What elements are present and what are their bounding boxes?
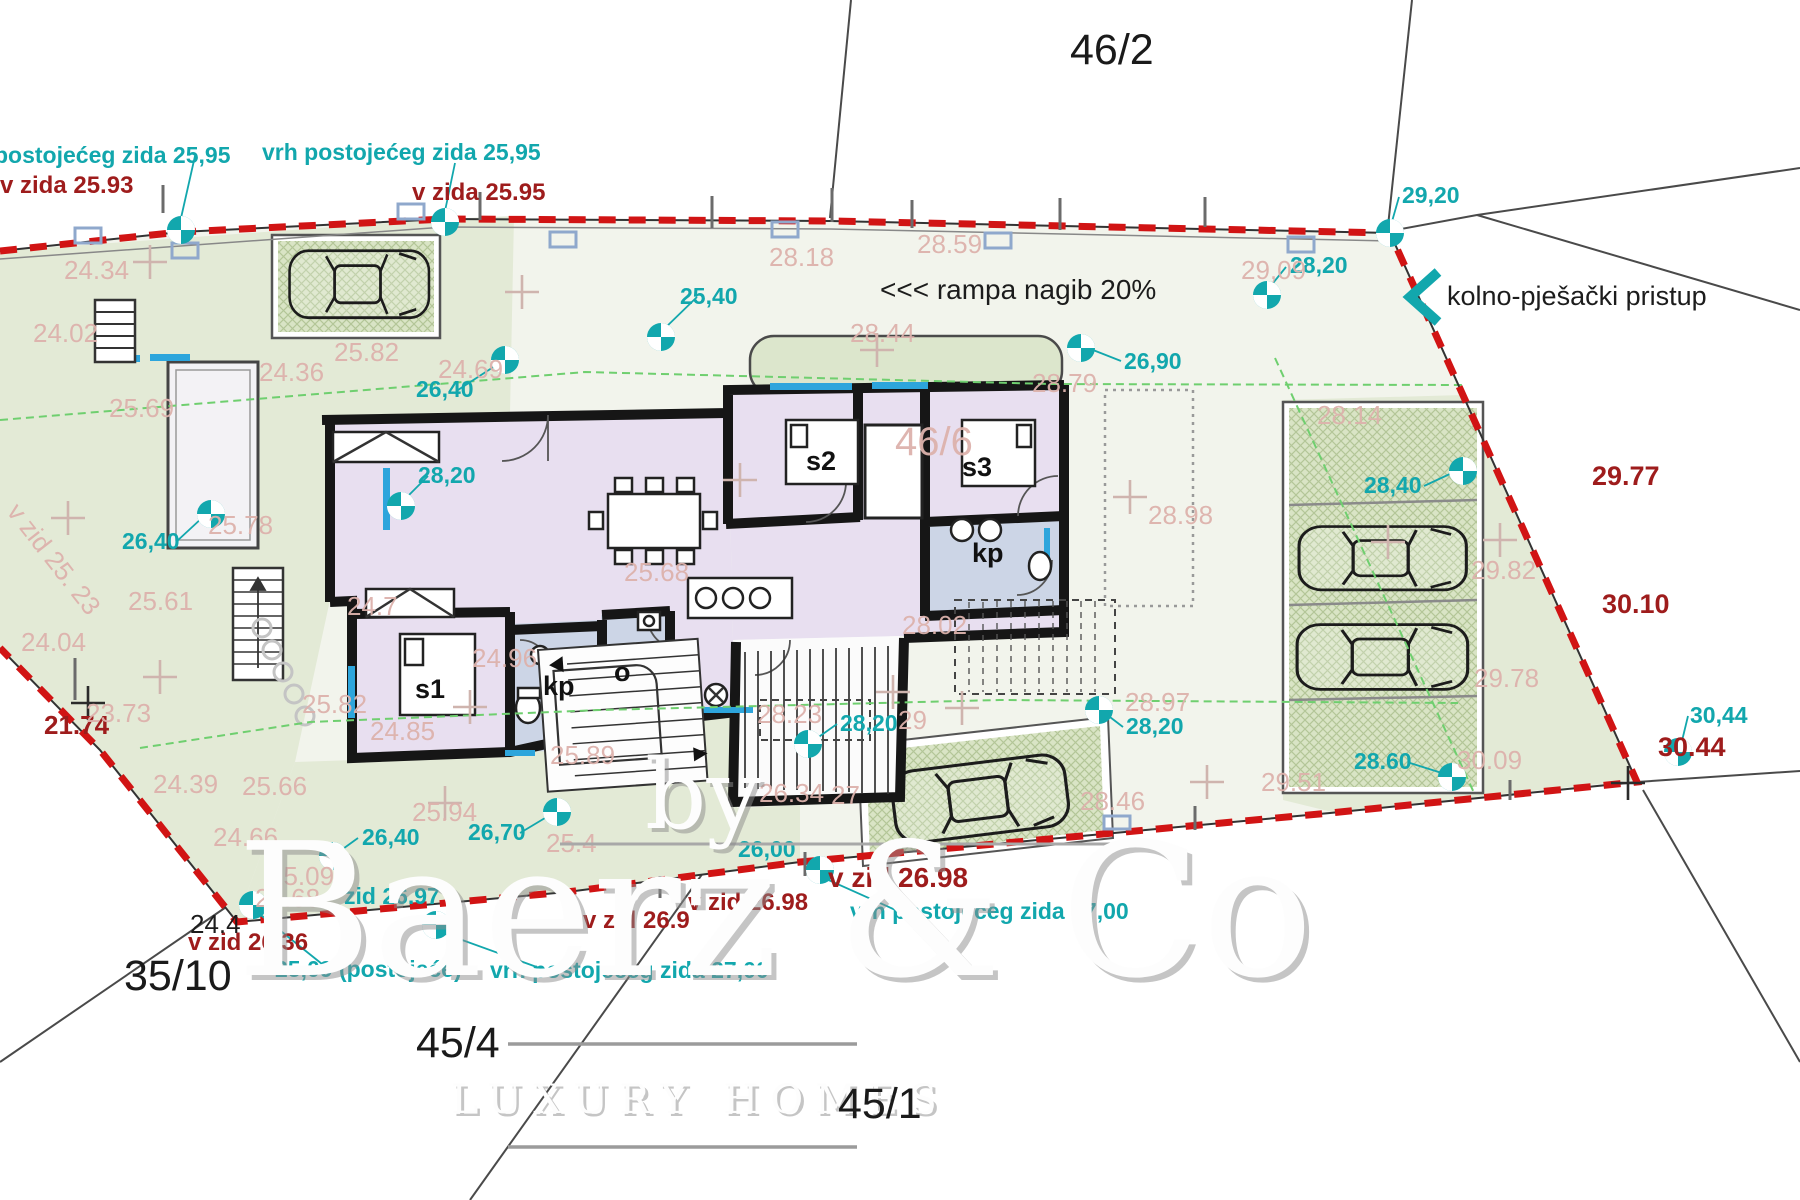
survey-marker-icon-1 bbox=[431, 208, 459, 236]
label-pink-6: 28.18 bbox=[769, 242, 834, 272]
label-pink-30: 29 bbox=[898, 705, 927, 735]
label-pink-27: 24.96 bbox=[472, 643, 537, 673]
label-teal-3: 26,90 bbox=[1124, 348, 1182, 374]
label-teal-0: postojećeg zida 25,95 bbox=[0, 142, 231, 168]
label-pink-11: 28.98 bbox=[1148, 500, 1213, 530]
survey-marker-icon-0 bbox=[167, 216, 195, 244]
label-rooms-0: s1 bbox=[415, 674, 445, 704]
car-right-1 bbox=[1299, 527, 1466, 590]
survey-marker-icon-16 bbox=[1085, 696, 1113, 724]
label-red-0: v zida 25.93 bbox=[0, 172, 133, 199]
label-pink-4: 24.69 bbox=[438, 354, 503, 384]
label-pink-16: 23.73 bbox=[86, 698, 151, 728]
label-pink-29: 28.23 bbox=[757, 699, 822, 729]
label-pink-3: 25.82 bbox=[334, 337, 399, 367]
label-black-1: kolno-pješački pristup bbox=[1447, 281, 1707, 311]
parcel-45-4: 45/4 bbox=[416, 1019, 500, 1067]
label-pink-28: 24.85 bbox=[370, 716, 435, 746]
survey-marker-icon-7 bbox=[387, 492, 415, 520]
stairs-garden-left bbox=[233, 568, 283, 680]
label-rooms-3: kp bbox=[543, 671, 575, 701]
survey-marker-icon-4 bbox=[1376, 219, 1404, 247]
label-pink-13: 25.78 bbox=[208, 510, 273, 540]
toilet bbox=[1029, 552, 1051, 580]
label-rooms-1: s2 bbox=[806, 446, 836, 476]
survey-marker-icon-2 bbox=[647, 323, 675, 351]
wardrobe bbox=[333, 432, 439, 462]
label-black-2: 24.4 bbox=[190, 909, 241, 939]
label-pink-38: 29.78 bbox=[1474, 663, 1539, 693]
label-pink-25: 25.82 bbox=[302, 689, 367, 719]
label-teal-17: 28,20 bbox=[840, 710, 898, 736]
label-pink-5: 25.69 bbox=[109, 393, 174, 423]
label-rooms-4: kp bbox=[972, 538, 1004, 568]
label-black-0: <<< rampa nagib 20% bbox=[880, 274, 1156, 305]
label-pink-15: 24.04 bbox=[21, 627, 86, 657]
survey-marker-icon-9 bbox=[1449, 457, 1477, 485]
survey-marker-icon-15 bbox=[794, 730, 822, 758]
label-pink-10: 46/6 bbox=[895, 420, 973, 464]
label-pink-8: 28.44 bbox=[850, 318, 915, 348]
site-plan-canvas: postojećeg zida 25,95vrh postojećeg zida… bbox=[0, 0, 1800, 1200]
label-pink-7: 28.59 bbox=[917, 229, 982, 259]
label-red-2: 29.77 bbox=[1592, 461, 1660, 491]
label-teal-9: 26,40 bbox=[122, 528, 180, 554]
label-red-1: v zida 25.95 bbox=[412, 179, 545, 206]
label-teal-6: 28,40 bbox=[1364, 472, 1422, 498]
watermark-name: Baerz & Co bbox=[237, 803, 1314, 1019]
label-pink-18: 25.66 bbox=[242, 771, 307, 801]
label-pink-14: 25.61 bbox=[128, 586, 193, 616]
label-pink-0: 24.34 bbox=[64, 255, 129, 285]
label-teal-8: 28,20 bbox=[418, 462, 476, 488]
car-right-2 bbox=[1297, 625, 1468, 690]
label-pink-40: 29,09 bbox=[1241, 255, 1306, 285]
survey-marker-icon-3 bbox=[1067, 334, 1095, 362]
parcel-46-2: 46/2 bbox=[1070, 26, 1154, 74]
parcel-35-10: 35/10 bbox=[124, 952, 232, 1000]
label-teal-20: 30,44 bbox=[1690, 702, 1748, 728]
label-pink-36: 29.51 bbox=[1261, 767, 1326, 797]
label-red-3: 30.10 bbox=[1602, 589, 1670, 619]
survey-marker-icon-5 bbox=[1253, 281, 1281, 309]
car-top-left bbox=[290, 251, 429, 318]
label-pink-39: 30.09 bbox=[1457, 745, 1522, 775]
label-pink-2: 24.36 bbox=[259, 357, 324, 387]
site-plan-drawing: postojećeg zida 25,95vrh postojećeg zida… bbox=[0, 0, 1800, 1200]
label-teal-2: 25,40 bbox=[680, 283, 738, 309]
label-teal-4: 29,20 bbox=[1402, 182, 1460, 208]
label-pink-41: 28.14 bbox=[1317, 400, 1382, 430]
label-teal-19: 28.60 bbox=[1354, 748, 1412, 774]
label-pink-34: 28.97 bbox=[1125, 687, 1190, 717]
label-pink-33: 28.02 bbox=[902, 610, 967, 640]
label-teal-1: vrh postojećeg zida 25,95 bbox=[262, 139, 541, 165]
label-pink-24: 25.89 bbox=[550, 740, 615, 770]
label-pink-26: 24.7 bbox=[347, 591, 398, 621]
label-pink-37: 29.82 bbox=[1471, 555, 1536, 585]
label-red-4: 30.44 bbox=[1658, 732, 1726, 762]
ladder bbox=[95, 300, 135, 362]
label-pink-9: 28.79 bbox=[1032, 368, 1097, 398]
label-pink-12: 25.68 bbox=[624, 557, 689, 587]
parcel-45-1: 45/1 bbox=[838, 1080, 922, 1128]
label-rooms-5: o bbox=[614, 657, 631, 687]
label-pink-17: 24.39 bbox=[153, 769, 218, 799]
label-pink-1: 24.02 bbox=[33, 318, 98, 348]
